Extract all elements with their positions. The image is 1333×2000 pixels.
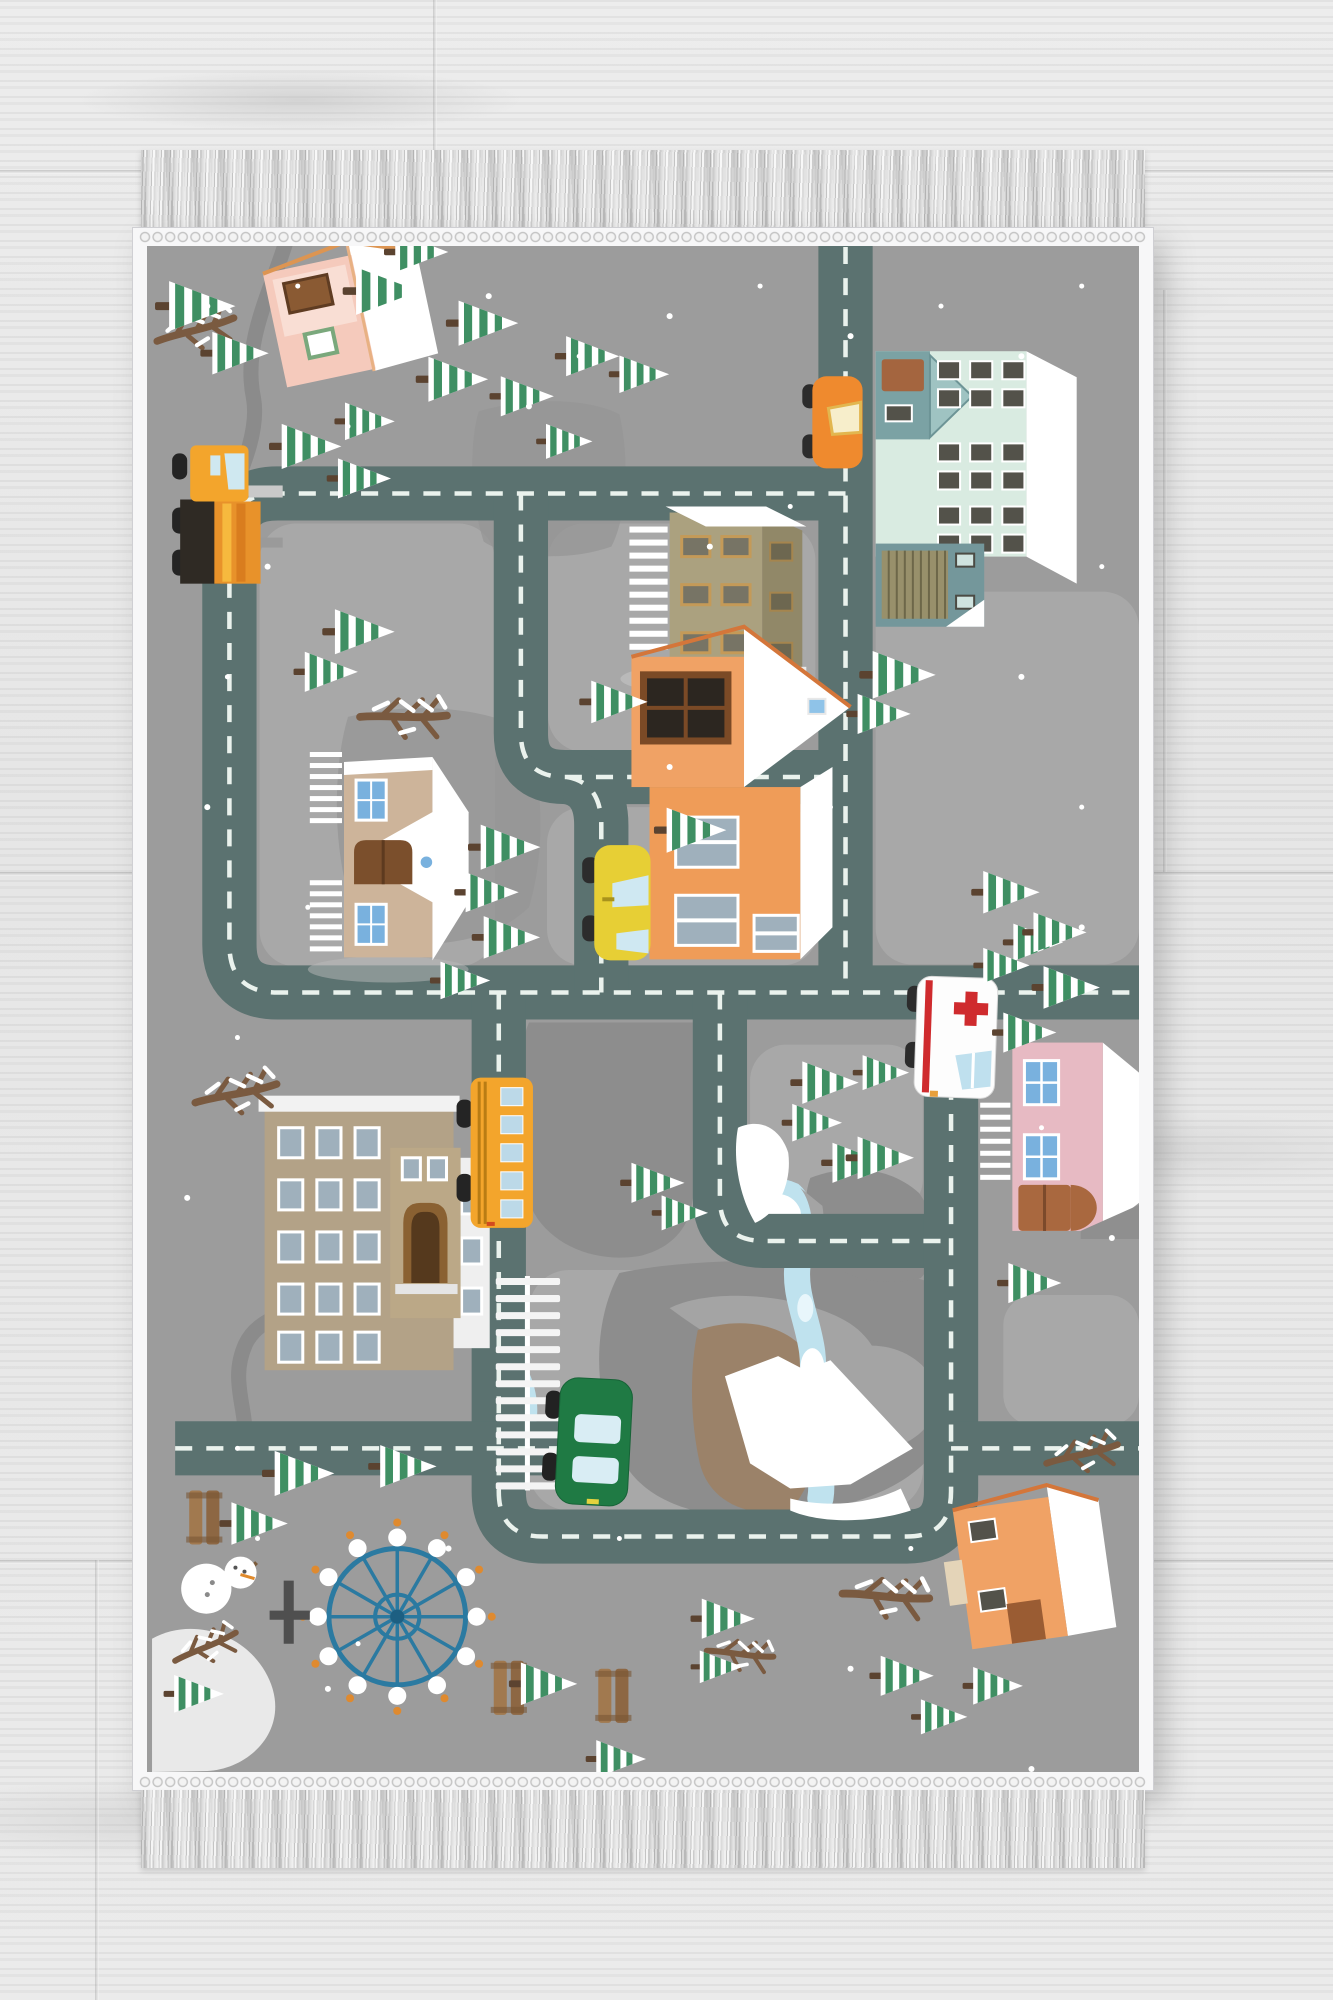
floor-plank-seam	[433, 0, 437, 170]
snow-mound	[152, 1629, 275, 1772]
snowman	[181, 1557, 256, 1614]
bench	[186, 1490, 222, 1544]
ambulance	[904, 976, 999, 1099]
pink-house	[980, 1043, 1139, 1239]
rug-knot-row	[139, 1775, 1147, 1788]
garage	[876, 544, 985, 627]
rug-artwork	[147, 246, 1139, 1772]
ferris-wheel	[299, 1519, 496, 1715]
floor-plank-seam	[1163, 290, 1167, 872]
rug-knot-row	[139, 230, 1147, 243]
floor-plank-seam	[95, 1560, 99, 2000]
school	[259, 1096, 490, 1371]
play-rug	[133, 150, 1153, 1868]
orange-car	[802, 376, 862, 468]
mint-apartment	[876, 351, 1077, 627]
rug-fringe-top	[141, 150, 1145, 228]
pink-cottage	[260, 246, 439, 389]
bench	[595, 1669, 631, 1723]
orange-house	[631, 627, 850, 960]
rug-body	[133, 228, 1153, 1790]
rug-fringe-bottom	[141, 1790, 1145, 1868]
signpost-tree	[270, 1581, 310, 1644]
